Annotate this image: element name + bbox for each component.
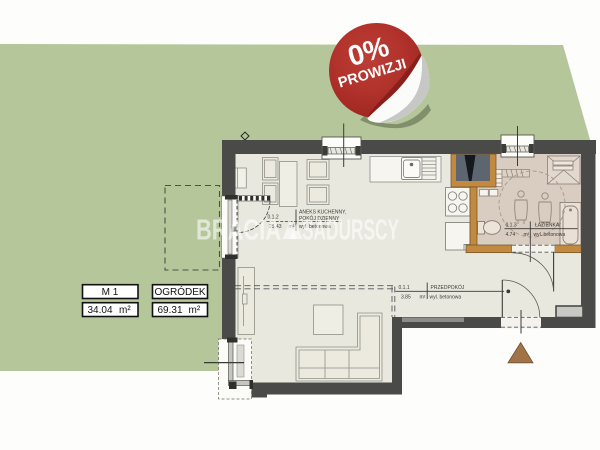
svg-text:m²: m² (189, 305, 201, 316)
svg-text:BRACIA: BRACIA (196, 215, 281, 247)
svg-text:OGRÓDEK: OGRÓDEK (154, 285, 205, 298)
svg-text:SADURSCY: SADURSCY (302, 215, 399, 247)
svg-text:69.31: 69.31 (158, 305, 183, 316)
svg-text:M 1: M 1 (102, 287, 119, 298)
svg-text:34.04: 34.04 (88, 305, 113, 316)
svg-text:4.74: 4.74 (506, 232, 516, 238)
svg-text:0.1.3: 0.1.3 (506, 223, 517, 229)
svg-text:0.1.1: 0.1.1 (399, 285, 410, 291)
svg-text:ŁAZIENKA/: ŁAZIENKA/ (535, 223, 561, 229)
svg-text:wyl. betonowa: wyl. betonowa (534, 232, 566, 238)
svg-text:m²: m² (420, 295, 426, 301)
svg-text:m²: m² (119, 305, 131, 316)
svg-text:m²: m² (524, 232, 530, 238)
svg-text:PRZEDPOKÓJ: PRZEDPOKÓJ (431, 284, 465, 291)
svg-text:3.85: 3.85 (401, 295, 411, 301)
svg-text:wyl. betonowa: wyl. betonowa (430, 295, 462, 301)
